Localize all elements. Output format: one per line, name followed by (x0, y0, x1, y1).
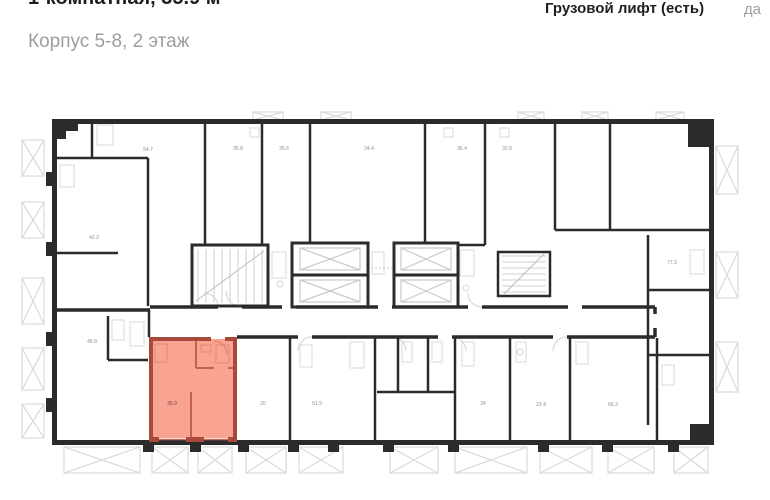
elevator-shafts (292, 243, 458, 307)
corridor-walls (57, 307, 655, 337)
staircase-2 (498, 252, 550, 296)
area-label: 20 (260, 401, 266, 407)
area-label: 77.3 (667, 260, 677, 266)
area-label: 22.4 (536, 402, 546, 408)
selected-area-label: 35.9 (167, 401, 177, 407)
area-label: 35.6 (279, 146, 289, 152)
staircase-1 (192, 245, 268, 306)
balcony-hatches (22, 112, 738, 473)
area-label: 46.8 (87, 339, 97, 345)
area-label: 36.4 (457, 146, 467, 152)
listing-page: { "header": { "title": "1-комнатная, 35.… (0, 0, 770, 500)
area-label: 51.9 (312, 401, 322, 407)
area-label: 24.4 (364, 146, 374, 152)
selected-apartment[interactable]: 35.9 (149, 337, 237, 442)
area-label: 35.8 (233, 146, 243, 152)
area-label: 54.7 (143, 147, 153, 153)
area-label: 34 (480, 401, 486, 407)
area-label: 66.3 (608, 402, 618, 408)
area-label: 32.8 (502, 146, 512, 152)
floor-plan: 35.9 54.7 35.8 35.6 24.4 36.4 32.8 42.2 … (0, 0, 770, 500)
area-label: 42.2 (89, 235, 99, 241)
